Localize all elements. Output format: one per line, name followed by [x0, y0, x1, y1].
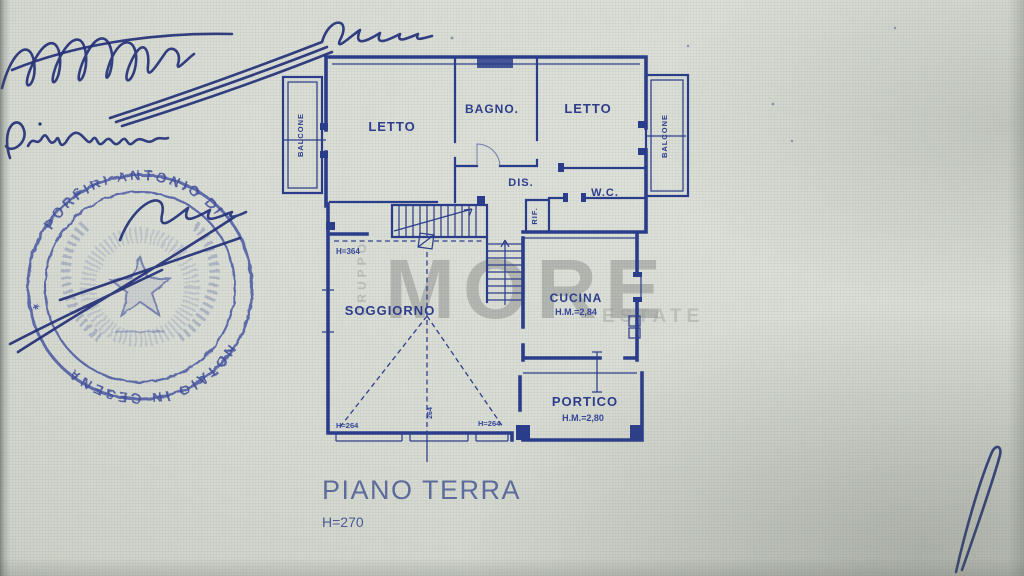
dim-wall-left: H=264 — [336, 421, 359, 430]
dim-portico-height: H.M.=2,80 — [562, 413, 604, 423]
room-label-soggiorno: SOGGIORNO — [345, 303, 436, 318]
stamp-text-bottom: NOTAIO IN CESENA — [64, 342, 240, 407]
svg-text:PORFIRI ANTONIO DI: PORFIRI ANTONIO DI — [40, 167, 228, 232]
dim-wall-right: H=264 — [478, 419, 501, 428]
room-label-wc: W.C. — [591, 187, 619, 199]
stamp-text-top: PORFIRI ANTONIO DI — [40, 167, 228, 232]
scanned-floor-plan-page: GRUPPO MORE ESTATE — [0, 0, 1024, 576]
room-label-cucina: CUCINA — [550, 291, 603, 305]
scan-specks — [451, 27, 897, 142]
notary-stamp: PORFIRI ANTONIO DI NOTAIO IN CESENA ✶ — [28, 167, 252, 407]
signature-top-left-crossbar — [12, 34, 232, 70]
room-label-balcone-right: BALCONE — [660, 114, 669, 158]
room-label-rif: RIF. — [530, 207, 539, 224]
floor-height: H=270 — [322, 514, 364, 530]
floor-plan-scene: GRUPPO MORE ESTATE — [0, 0, 1024, 576]
top-wall-notch — [477, 58, 513, 68]
signature-giuliano-dot — [38, 122, 41, 125]
svg-text:NOTAIO IN CESENA: NOTAIO IN CESENA — [64, 342, 240, 407]
room-label-bagno: BAGNO. — [465, 102, 519, 116]
room-label-letto-left: LETTO — [368, 119, 415, 134]
dim-cucina-height: H.M.=2,84 — [555, 307, 597, 317]
room-label-portico: PORTICO — [552, 394, 618, 409]
dim-wall-center: 264 — [427, 407, 434, 419]
door-swing-arc — [477, 144, 500, 166]
watermark: GRUPPO MORE ESTATE — [355, 240, 704, 336]
watermark-estate: ESTATE — [602, 306, 704, 327]
dim-soggiorno-height: H=364 — [336, 247, 360, 256]
floor-title: PIANO TERRA — [322, 475, 521, 505]
room-label-dis: DIS. — [508, 177, 533, 189]
signature-bottom-right — [956, 447, 1000, 572]
room-label-letto-right: LETTO — [564, 101, 611, 116]
svg-text:✶: ✶ — [30, 298, 43, 312]
signature-giuliano — [6, 122, 168, 158]
signature-flourish — [110, 23, 432, 126]
portico-pillars — [516, 425, 642, 440]
stamp-separator-star: ✶ — [30, 298, 43, 312]
stamp-wreath-left — [66, 225, 100, 338]
room-label-balcone-left: BALCONE — [296, 113, 305, 157]
